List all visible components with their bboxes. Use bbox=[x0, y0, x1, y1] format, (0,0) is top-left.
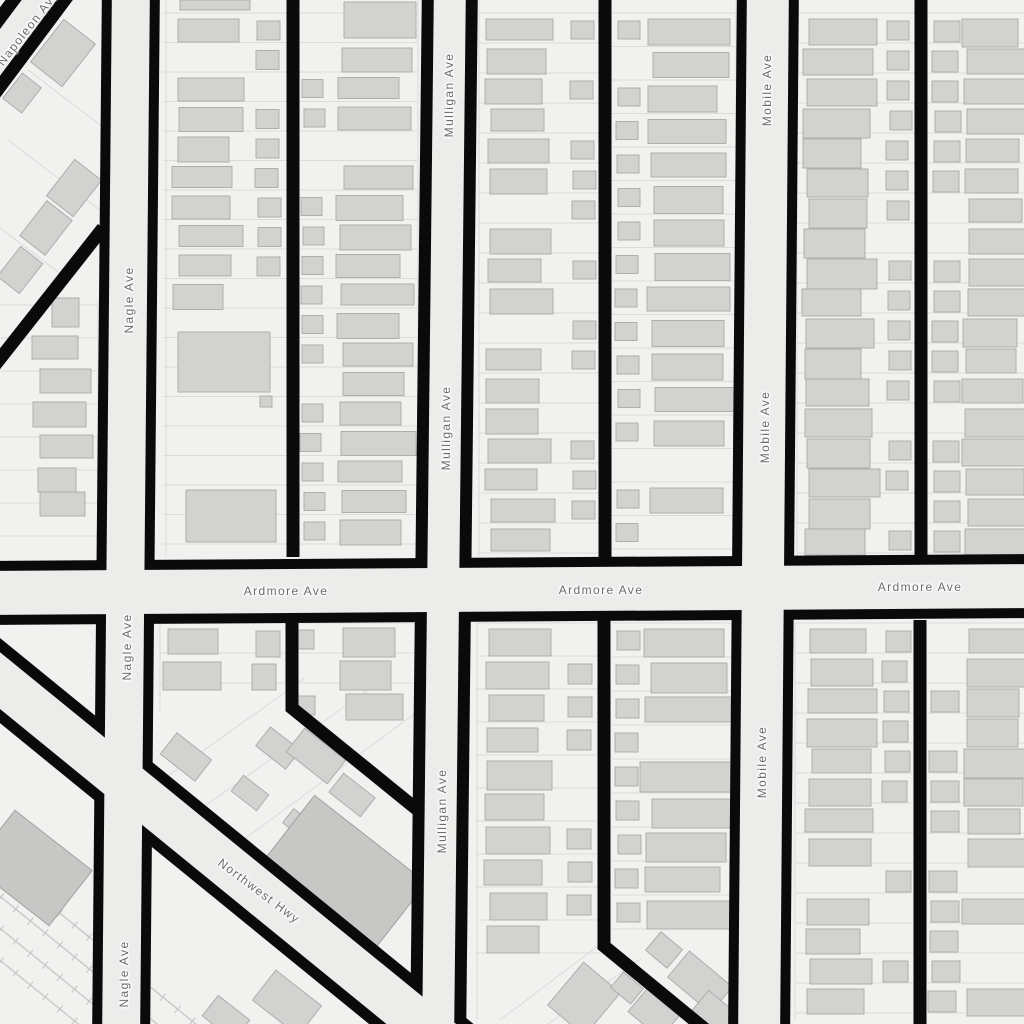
building bbox=[965, 169, 1018, 193]
building bbox=[179, 226, 243, 247]
building bbox=[882, 781, 907, 802]
building bbox=[302, 463, 323, 481]
building bbox=[340, 402, 401, 425]
building bbox=[809, 839, 871, 866]
building bbox=[616, 256, 638, 274]
building bbox=[931, 901, 959, 922]
building bbox=[302, 345, 323, 363]
building bbox=[618, 390, 640, 408]
building bbox=[809, 499, 870, 529]
building bbox=[967, 689, 1019, 717]
street-label-mulligan-ave-1: Mulligan Ave bbox=[442, 53, 456, 138]
building bbox=[491, 499, 555, 522]
building bbox=[615, 733, 638, 752]
building bbox=[809, 469, 880, 497]
building bbox=[811, 659, 873, 686]
building bbox=[32, 336, 78, 359]
building bbox=[256, 110, 279, 129]
building bbox=[886, 631, 911, 652]
building bbox=[163, 662, 221, 690]
building bbox=[342, 48, 412, 72]
building bbox=[931, 781, 959, 802]
street-label-mulligan-ave-3: Mulligan Ave bbox=[435, 769, 449, 854]
building bbox=[889, 351, 911, 370]
building bbox=[807, 259, 877, 289]
building bbox=[487, 926, 539, 953]
building bbox=[964, 779, 1023, 806]
building bbox=[491, 109, 544, 131]
building bbox=[180, 0, 250, 10]
building bbox=[256, 51, 279, 70]
building bbox=[302, 316, 323, 334]
building bbox=[485, 794, 544, 820]
building bbox=[573, 321, 596, 339]
building bbox=[933, 171, 959, 192]
building bbox=[33, 402, 86, 427]
building bbox=[257, 257, 280, 276]
building bbox=[172, 196, 230, 219]
building bbox=[302, 257, 323, 275]
building bbox=[343, 343, 413, 366]
building bbox=[572, 351, 595, 369]
building bbox=[340, 225, 411, 250]
building bbox=[886, 171, 908, 190]
building bbox=[490, 289, 553, 314]
building bbox=[810, 629, 866, 653]
building bbox=[966, 469, 1024, 495]
building bbox=[807, 79, 877, 106]
street-label-nagle-ave-3: Nagle Ave bbox=[117, 940, 131, 1007]
building bbox=[618, 222, 640, 240]
building bbox=[888, 321, 910, 340]
building bbox=[805, 529, 865, 555]
building bbox=[929, 751, 957, 772]
building bbox=[886, 471, 908, 490]
building bbox=[484, 860, 542, 885]
building bbox=[655, 388, 738, 412]
building bbox=[573, 261, 596, 279]
building bbox=[346, 694, 403, 720]
road-fill-mulligan-ave bbox=[438, 0, 450, 1024]
building bbox=[616, 122, 638, 140]
building bbox=[300, 434, 321, 452]
building bbox=[616, 801, 639, 820]
building bbox=[886, 871, 911, 892]
building bbox=[567, 895, 591, 915]
building bbox=[615, 289, 637, 307]
building bbox=[302, 404, 323, 422]
building bbox=[340, 661, 391, 690]
building bbox=[341, 432, 416, 456]
building bbox=[969, 199, 1022, 222]
building bbox=[803, 109, 870, 138]
building bbox=[890, 111, 912, 130]
building bbox=[618, 21, 640, 39]
building bbox=[616, 423, 638, 441]
building bbox=[485, 469, 537, 490]
building bbox=[805, 809, 873, 832]
building bbox=[806, 319, 874, 348]
building bbox=[490, 893, 547, 920]
building bbox=[648, 19, 730, 45]
building bbox=[651, 153, 726, 177]
map-canvas[interactable]: Napoleon Ave Nagle Ave Nagle Ave Nagle A… bbox=[0, 0, 1024, 1024]
building bbox=[965, 409, 1024, 437]
building bbox=[807, 989, 864, 1014]
building bbox=[568, 862, 592, 882]
building bbox=[252, 664, 276, 690]
building bbox=[805, 349, 861, 379]
building bbox=[807, 719, 877, 747]
building bbox=[337, 314, 399, 339]
building bbox=[255, 169, 278, 188]
building bbox=[962, 19, 1018, 47]
building bbox=[304, 493, 325, 511]
building bbox=[889, 261, 911, 280]
building bbox=[934, 531, 960, 552]
street-label-nagle-ave-1: Nagle Ave bbox=[122, 266, 136, 333]
building bbox=[883, 721, 908, 742]
building bbox=[571, 141, 594, 159]
building bbox=[344, 166, 413, 189]
building bbox=[571, 441, 594, 459]
building bbox=[968, 839, 1024, 867]
building bbox=[344, 2, 416, 38]
building bbox=[486, 827, 550, 854]
building bbox=[654, 187, 723, 214]
building bbox=[488, 439, 551, 463]
building bbox=[338, 107, 411, 130]
building bbox=[485, 79, 542, 104]
building bbox=[884, 691, 909, 712]
building bbox=[340, 520, 401, 545]
building bbox=[336, 255, 400, 278]
building bbox=[648, 120, 726, 144]
building bbox=[302, 80, 323, 98]
building bbox=[803, 139, 861, 168]
building bbox=[968, 809, 1020, 834]
building bbox=[934, 291, 960, 312]
street-label-nagle-ave-2: Nagle Ave bbox=[120, 613, 134, 680]
building bbox=[965, 529, 1024, 557]
building bbox=[40, 435, 93, 458]
building bbox=[572, 201, 595, 219]
building bbox=[178, 78, 244, 101]
building bbox=[929, 871, 957, 892]
building bbox=[648, 86, 717, 112]
map-graphics bbox=[0, 0, 1024, 1024]
building bbox=[618, 189, 640, 207]
building bbox=[889, 531, 911, 550]
building bbox=[301, 198, 322, 216]
building bbox=[933, 441, 959, 462]
building bbox=[615, 767, 638, 786]
building bbox=[256, 631, 280, 657]
building bbox=[568, 664, 592, 684]
building bbox=[489, 629, 551, 656]
building bbox=[616, 524, 638, 542]
building bbox=[38, 468, 76, 492]
building bbox=[887, 381, 909, 400]
building bbox=[968, 499, 1024, 526]
building bbox=[644, 629, 724, 657]
building bbox=[570, 81, 593, 99]
building bbox=[178, 19, 239, 42]
building bbox=[810, 959, 872, 984]
building bbox=[40, 492, 85, 516]
building bbox=[969, 259, 1024, 286]
building bbox=[487, 49, 546, 74]
building bbox=[802, 289, 861, 316]
building bbox=[258, 228, 281, 247]
building bbox=[341, 284, 414, 305]
building bbox=[887, 201, 909, 220]
building bbox=[342, 491, 406, 513]
building bbox=[178, 332, 270, 392]
building bbox=[962, 899, 1024, 924]
building bbox=[963, 319, 1017, 347]
building bbox=[934, 471, 960, 492]
building bbox=[617, 356, 639, 374]
building bbox=[931, 691, 959, 712]
building bbox=[618, 835, 641, 854]
building bbox=[618, 88, 640, 106]
building bbox=[888, 291, 910, 310]
building bbox=[491, 529, 550, 551]
building bbox=[617, 903, 640, 922]
building bbox=[887, 21, 909, 40]
building bbox=[486, 662, 549, 689]
building bbox=[966, 349, 1016, 373]
building bbox=[338, 78, 399, 99]
building bbox=[650, 488, 723, 513]
building bbox=[179, 255, 231, 276]
building bbox=[808, 689, 877, 713]
building bbox=[969, 629, 1024, 653]
building bbox=[645, 697, 732, 722]
building bbox=[617, 490, 639, 508]
building bbox=[617, 631, 640, 650]
building bbox=[616, 665, 639, 684]
building bbox=[168, 629, 218, 654]
building bbox=[336, 196, 403, 221]
building bbox=[486, 19, 553, 40]
building bbox=[887, 81, 909, 100]
building bbox=[809, 199, 867, 228]
building bbox=[885, 751, 910, 772]
building bbox=[806, 379, 869, 406]
street-label-mobile-ave-2: Mobile Ave bbox=[758, 391, 772, 463]
building bbox=[934, 261, 960, 282]
building bbox=[803, 49, 873, 75]
building bbox=[932, 351, 958, 372]
building bbox=[257, 21, 280, 40]
building bbox=[652, 321, 724, 347]
building bbox=[490, 169, 547, 194]
building bbox=[652, 799, 732, 828]
building bbox=[934, 141, 960, 162]
street-label-mulligan-ave-2: Mulligan Ave bbox=[439, 386, 453, 471]
road-fill-nagle-ave bbox=[121, 0, 131, 1024]
street-label-mobile-ave-1: Mobile Ave bbox=[760, 54, 774, 126]
road-fill-mobile-ave bbox=[759, 0, 768, 1024]
building bbox=[934, 381, 960, 402]
building bbox=[304, 522, 325, 540]
building bbox=[654, 421, 724, 446]
building bbox=[486, 349, 541, 370]
building bbox=[931, 811, 959, 832]
building bbox=[653, 53, 729, 78]
building bbox=[651, 663, 727, 693]
building bbox=[889, 441, 911, 460]
building bbox=[260, 396, 272, 407]
building bbox=[617, 155, 639, 173]
building bbox=[962, 439, 1024, 466]
building bbox=[882, 661, 907, 682]
building bbox=[615, 869, 638, 888]
building bbox=[804, 229, 865, 258]
building bbox=[935, 111, 961, 132]
building bbox=[807, 169, 868, 197]
building bbox=[967, 719, 1018, 747]
building bbox=[52, 298, 79, 327]
building bbox=[962, 379, 1023, 403]
building bbox=[489, 695, 544, 721]
building bbox=[487, 728, 538, 752]
building bbox=[172, 167, 232, 188]
building bbox=[806, 929, 860, 954]
building bbox=[967, 989, 1024, 1016]
building bbox=[812, 749, 871, 773]
street-label-mobile-ave-3: Mobile Ave bbox=[755, 726, 769, 798]
building bbox=[886, 141, 908, 160]
building bbox=[256, 139, 279, 158]
building bbox=[968, 289, 1024, 316]
building bbox=[178, 137, 229, 162]
building bbox=[301, 286, 322, 304]
building bbox=[930, 931, 958, 952]
building bbox=[934, 21, 960, 42]
building bbox=[173, 285, 223, 310]
building bbox=[304, 109, 325, 127]
building bbox=[567, 829, 591, 849]
building bbox=[967, 109, 1024, 134]
building bbox=[186, 490, 276, 542]
street-label-ardmore-ave-3: Ardmore Ave bbox=[878, 580, 963, 594]
street-label-ardmore-ave-1: Ardmore Ave bbox=[244, 584, 329, 598]
building bbox=[567, 730, 591, 750]
building bbox=[571, 21, 594, 39]
building bbox=[966, 139, 1019, 162]
building bbox=[573, 171, 596, 189]
building bbox=[645, 867, 720, 892]
building bbox=[967, 659, 1024, 687]
building bbox=[343, 373, 404, 396]
building bbox=[646, 833, 726, 862]
building bbox=[964, 79, 1024, 104]
building bbox=[932, 321, 958, 342]
building bbox=[809, 779, 871, 806]
building bbox=[805, 409, 872, 437]
building bbox=[887, 51, 909, 70]
building bbox=[303, 227, 324, 245]
building bbox=[655, 254, 730, 281]
building bbox=[969, 229, 1024, 254]
building bbox=[258, 198, 281, 217]
building bbox=[934, 501, 960, 522]
building bbox=[486, 409, 538, 434]
building bbox=[964, 749, 1024, 778]
building bbox=[807, 439, 870, 468]
building bbox=[928, 991, 956, 1012]
building bbox=[967, 49, 1024, 74]
building bbox=[487, 761, 552, 790]
building bbox=[568, 697, 592, 717]
building bbox=[486, 379, 539, 403]
building bbox=[932, 81, 958, 102]
building bbox=[338, 461, 402, 482]
building bbox=[807, 899, 869, 925]
building bbox=[490, 229, 551, 254]
street-label-ardmore-ave-2: Ardmore Ave bbox=[559, 583, 644, 597]
building bbox=[40, 369, 91, 393]
road-fill-ardmore-ave bbox=[0, 586, 1024, 593]
building bbox=[654, 220, 724, 246]
building bbox=[488, 259, 541, 282]
building bbox=[647, 287, 730, 311]
building bbox=[647, 901, 732, 929]
building bbox=[640, 762, 732, 792]
building bbox=[652, 354, 723, 380]
building bbox=[809, 19, 877, 45]
building bbox=[179, 108, 243, 132]
building bbox=[343, 628, 395, 657]
building bbox=[573, 471, 596, 489]
building bbox=[932, 51, 958, 72]
building bbox=[883, 961, 908, 982]
building bbox=[488, 139, 549, 163]
building bbox=[572, 501, 595, 519]
building bbox=[932, 961, 960, 982]
building bbox=[615, 323, 637, 341]
building bbox=[616, 699, 639, 718]
